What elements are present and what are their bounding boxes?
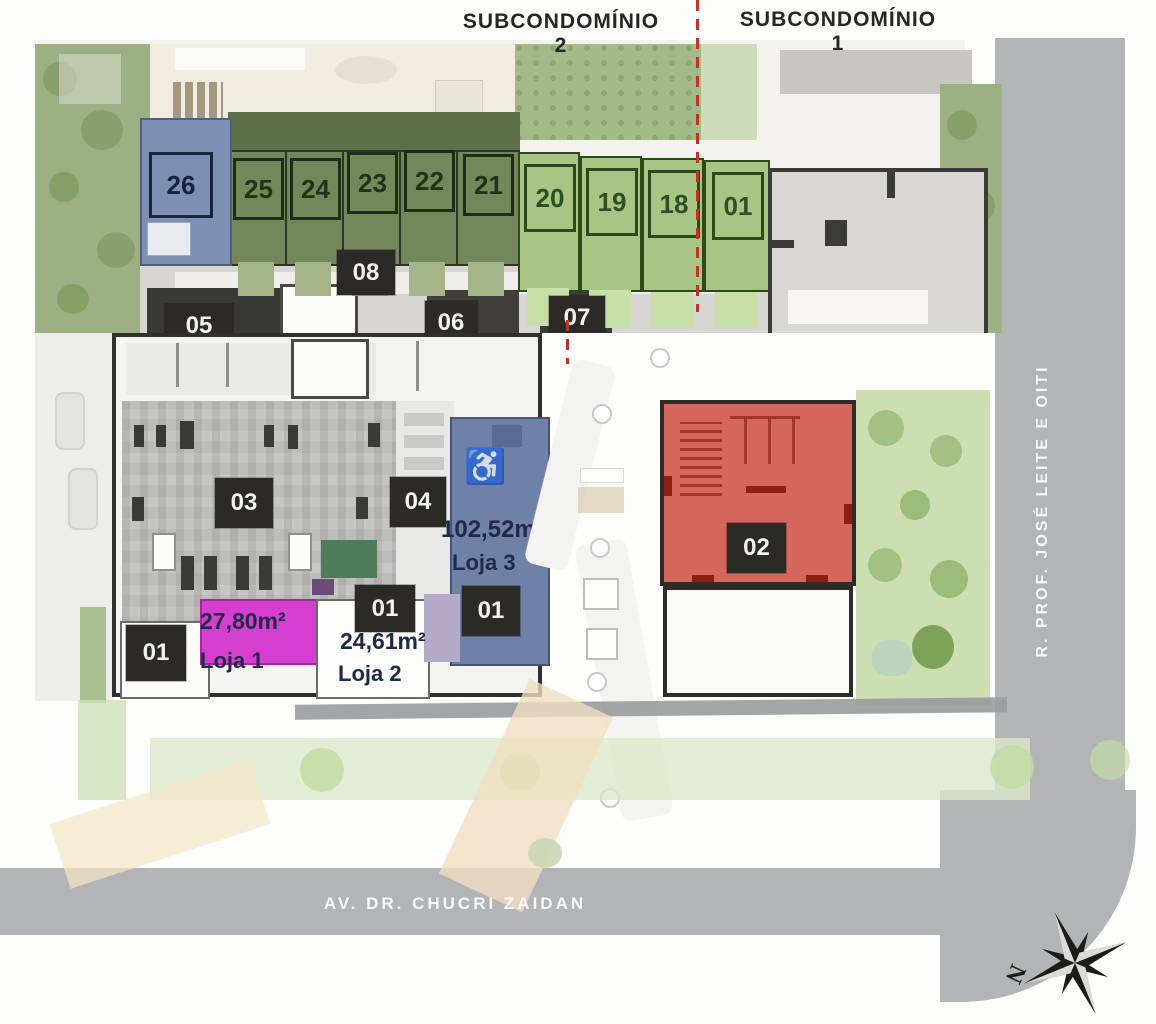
label-02-text: 02	[743, 534, 770, 562]
plaza-tree	[650, 348, 670, 368]
blue-roof-detail	[492, 425, 522, 447]
wall-mark	[416, 341, 419, 391]
wall-mark	[226, 343, 229, 387]
wall-mark	[176, 343, 179, 387]
subcondominio-2-text: SUBCONDOMÍNIO 2	[463, 10, 659, 57]
wall-mark	[825, 220, 847, 246]
lawn-mid	[515, 44, 701, 140]
corner-accent	[806, 575, 828, 582]
loja1-name-text: Loja 1	[200, 648, 264, 674]
car-stub	[259, 556, 272, 590]
wall-mark	[887, 168, 895, 198]
label-01-left: 01	[126, 625, 186, 681]
car-stub	[236, 556, 249, 590]
loja2-area: 24,61m²	[340, 628, 426, 654]
wall-mark	[768, 240, 794, 248]
tree-blob	[57, 284, 89, 314]
street-name-right: R. PROF. JOSÉ LEITE E OITI	[1034, 321, 1056, 701]
corner-accent	[844, 504, 852, 524]
unit-18-label: 18	[660, 189, 689, 220]
unit-20-numbox: 20	[524, 164, 576, 232]
green-planter	[321, 540, 377, 578]
balcony	[238, 262, 274, 296]
faded-tree	[990, 745, 1034, 789]
unit-21-numbox: 21	[463, 154, 514, 216]
loja1-area: 27,80m²	[200, 608, 286, 634]
pergola-grid	[173, 82, 223, 118]
parking-mark	[132, 497, 144, 521]
plaza-bench	[580, 468, 624, 483]
street-name-right-text: R. PROF. JOSÉ LEITE E OITI	[1034, 364, 1051, 657]
plaza-tree	[590, 538, 610, 558]
plaza-tree	[592, 404, 612, 424]
subcondominio-2-title: SUBCONDOMÍNIO 2	[455, 10, 667, 58]
unit-01-label: 01	[724, 191, 753, 222]
loja2-name: Loja 2	[338, 661, 402, 686]
parking-mark	[156, 425, 166, 447]
tree-blob	[900, 490, 930, 520]
label-04-text: 04	[405, 488, 432, 516]
loja3-name: Loja 3	[452, 550, 516, 575]
unit-22-label: 22	[415, 166, 444, 197]
lawn-right-of-line	[701, 44, 757, 140]
wall-line	[768, 418, 771, 464]
label-04: 04	[390, 477, 446, 527]
garden-structure	[59, 54, 121, 104]
unit-26-numbox: 26	[149, 152, 213, 218]
tree-blob	[930, 435, 962, 467]
car-outline	[68, 468, 98, 530]
plaza-planter	[583, 578, 619, 610]
parking-mark	[134, 425, 144, 447]
parking-mark	[264, 425, 274, 447]
unit-22-numbox: 22	[404, 150, 455, 212]
label-06-cut: 06	[425, 301, 477, 333]
label-07-cut: 07	[549, 296, 605, 333]
unit-26-label: 26	[167, 170, 196, 201]
unit-19-label: 19	[598, 187, 627, 218]
label-01-mid: 01	[355, 585, 415, 632]
fixture	[404, 435, 444, 448]
roof-oval	[335, 56, 397, 84]
roof-strip	[175, 48, 305, 70]
balcony	[468, 262, 504, 296]
label-08-text: 08	[353, 259, 380, 287]
fixture	[404, 457, 444, 470]
boundary-dashed-line	[696, 0, 699, 312]
tree-blob	[868, 548, 902, 582]
label-06-text: 06	[438, 309, 465, 333]
label-01-blue-text: 01	[478, 597, 505, 625]
building-right-room	[788, 290, 928, 324]
sidewalk-tree	[528, 838, 562, 868]
unit-23-label: 23	[358, 168, 387, 199]
faded-tree	[1090, 740, 1130, 780]
subcondominio-1-title: SUBCONDOMÍNIO 1	[732, 8, 944, 56]
fixture	[404, 413, 444, 426]
wall-line	[730, 416, 800, 419]
upper-plan-section: 26 25 24 23 22 21 20 19 18 01 08 0	[35, 40, 1105, 333]
tree-blob	[947, 110, 977, 140]
label-01-left-text: 01	[143, 639, 170, 667]
plaza-planter	[586, 628, 618, 660]
car-stub	[204, 556, 217, 590]
red-dash-detail	[746, 486, 786, 493]
unit-18-numbox: 18	[648, 170, 700, 238]
compass-rose: N	[1000, 902, 1150, 1024]
label-01-blue: 01	[462, 586, 520, 636]
stair-nub	[312, 579, 334, 595]
wheelchair-icon: ♿	[464, 447, 506, 487]
subcondominio-1-text: SUBCONDOMÍNIO 1	[740, 8, 936, 55]
units-olive-roof	[228, 112, 520, 154]
unit-21-label: 21	[474, 170, 503, 201]
loja1-name: Loja 1	[200, 648, 264, 673]
tree-blob	[49, 172, 79, 202]
plaza-steps	[578, 487, 624, 513]
label-05-cut: 05	[165, 304, 233, 333]
planting-strip-left	[78, 700, 126, 800]
faded-tree	[300, 748, 344, 792]
label-03-text: 03	[231, 489, 258, 517]
skylight	[288, 533, 312, 571]
loja3-name-text: Loja 3	[452, 550, 516, 576]
label-05-text: 05	[186, 312, 213, 333]
tree-blob	[97, 232, 135, 268]
hedge-left-lower	[80, 607, 106, 703]
unit-25-label: 25	[244, 174, 273, 205]
loja2-name-text: Loja 2	[338, 661, 402, 687]
room-dark	[291, 339, 369, 399]
unit-23-numbox: 23	[347, 152, 398, 214]
parking-mark	[356, 497, 368, 519]
pond	[872, 640, 912, 676]
label-02: 02	[727, 523, 786, 573]
plaza-tree	[587, 672, 607, 692]
car-stub	[181, 556, 194, 590]
wall-line	[792, 418, 795, 464]
car-outline	[55, 392, 85, 450]
tree-blob	[81, 110, 123, 150]
corner-accent	[692, 575, 714, 582]
balcony	[295, 262, 331, 296]
street-name-bottom-text: AV. DR. CHUCRI ZAIDAN	[324, 894, 586, 913]
lavender-room	[424, 594, 460, 662]
roof-box	[435, 80, 483, 116]
unit-24-numbox: 24	[290, 158, 341, 220]
building-02-annex	[663, 586, 853, 697]
unit-01-numbox: 01	[712, 172, 764, 240]
tree-blob	[930, 560, 968, 598]
unit-24-label: 24	[301, 174, 330, 205]
parking-mark	[368, 423, 380, 447]
unit-20-label: 20	[536, 183, 565, 214]
balcony	[409, 262, 445, 296]
label-08: 08	[337, 250, 395, 295]
corner-accent	[664, 476, 672, 496]
site-plan-canvas: 26 25 24 23 22 21 20 19 18 01 08 0	[0, 0, 1156, 1024]
loja1-area-text: 27,80m²	[200, 608, 286, 635]
parking-mark	[288, 425, 298, 449]
parking-mark	[180, 421, 194, 449]
street-name-bottom: AV. DR. CHUCRI ZAIDAN	[255, 894, 655, 914]
loja2-area-text: 24,61m²	[340, 628, 426, 655]
tree-blob	[868, 410, 904, 446]
unit-26-terrace	[147, 222, 191, 256]
label-01-mid-text: 01	[372, 595, 399, 623]
label-03: 03	[215, 478, 273, 528]
balcony	[715, 292, 757, 328]
stair-hatch	[680, 422, 722, 496]
skylight	[152, 533, 176, 571]
unit-25-numbox: 25	[233, 158, 284, 220]
bush-dark	[912, 625, 954, 669]
unit-19-numbox: 19	[586, 168, 638, 236]
wall-line	[744, 418, 747, 464]
balcony	[651, 292, 693, 328]
boundary-dashed-line-lower	[566, 320, 569, 364]
